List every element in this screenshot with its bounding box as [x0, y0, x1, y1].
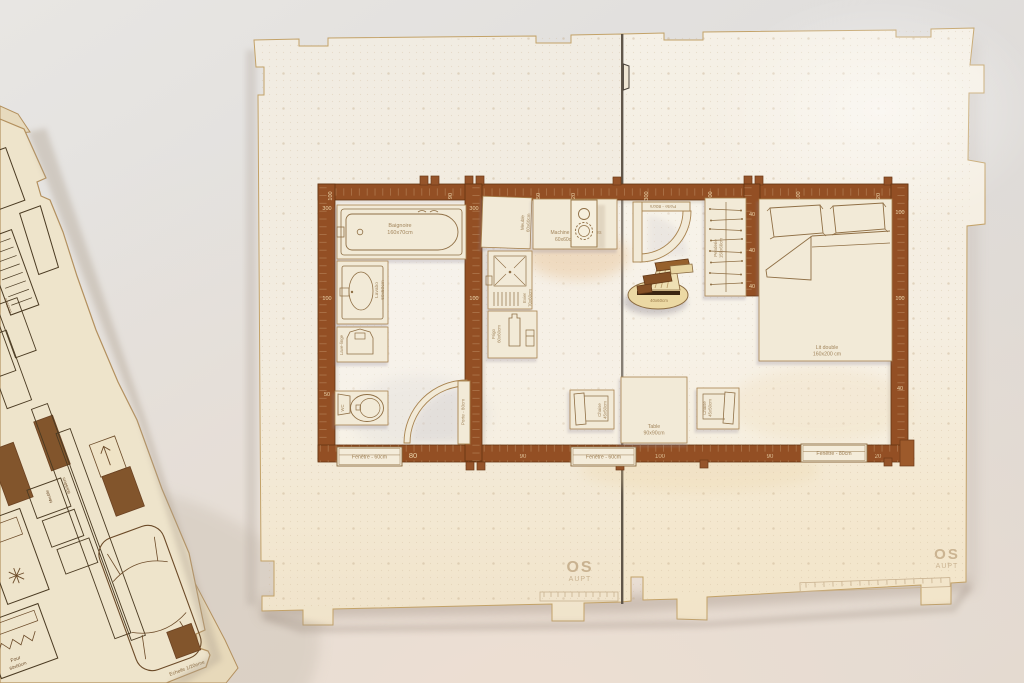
- svg-text:Lit double: Lit double: [816, 345, 839, 351]
- svg-text:Lave-linge: Lave-linge: [339, 334, 344, 355]
- svg-text:100: 100: [655, 454, 666, 460]
- svg-text:40x60cm: 40x60cm: [650, 298, 668, 303]
- svg-text:60x60cm: 60x60cm: [497, 325, 502, 343]
- svg-text:Meuble: Meuble: [520, 215, 526, 231]
- svg-text:Chaise: Chaise: [702, 401, 707, 415]
- svg-text:300: 300: [469, 206, 478, 212]
- svg-text:Frigo: Frigo: [491, 328, 496, 339]
- svg-text:Evier: Evier: [522, 292, 527, 303]
- svg-text:20: 20: [876, 193, 882, 199]
- svg-text:90x90cm: 90x90cm: [643, 431, 664, 437]
- svg-text:160x200 cm: 160x200 cm: [813, 352, 841, 358]
- svg-text:45x50cm: 45x50cm: [603, 401, 608, 419]
- svg-text:300: 300: [644, 191, 650, 200]
- svg-text:40: 40: [749, 212, 755, 218]
- svg-text:20: 20: [875, 454, 882, 460]
- svg-text:160x70cm: 160x70cm: [387, 230, 413, 236]
- svg-text:Baignoire: Baignoire: [388, 223, 411, 229]
- svg-text:40: 40: [749, 248, 755, 254]
- svg-text:45x50cm: 45x50cm: [708, 399, 713, 417]
- svg-text:70x60cm: 70x60cm: [528, 289, 533, 307]
- svg-text:100: 100: [895, 296, 904, 302]
- svg-text:50: 50: [324, 392, 330, 398]
- svg-text:90: 90: [448, 193, 454, 199]
- svg-text:90: 90: [520, 454, 527, 460]
- svg-text:OS: OS: [934, 546, 960, 563]
- svg-text:50: 50: [536, 193, 542, 199]
- svg-text:100: 100: [469, 296, 478, 302]
- svg-text:Chaise: Chaise: [597, 403, 602, 417]
- svg-text:AUPT: AUPT: [936, 563, 959, 570]
- svg-text:60x50cm: 60x50cm: [380, 280, 386, 299]
- svg-text:40: 40: [749, 284, 755, 290]
- svg-text:60x60cm: 60x60cm: [525, 213, 531, 232]
- svg-text:Porte - 80cm: Porte - 80cm: [461, 399, 466, 425]
- svg-text:Table: Table: [648, 424, 661, 430]
- svg-text:100: 100: [328, 191, 334, 200]
- svg-text:40: 40: [897, 386, 903, 392]
- svg-text:150x60cm: 150x60cm: [719, 238, 724, 259]
- svg-text:Lavabo: Lavabo: [374, 282, 380, 298]
- svg-text:90: 90: [767, 454, 774, 460]
- svg-text:Fenêtre - 80cm: Fenêtre - 80cm: [816, 451, 851, 457]
- svg-text:Penderie: Penderie: [713, 239, 718, 257]
- svg-text:AUPT: AUPT: [569, 576, 592, 583]
- svg-text:80: 80: [409, 451, 417, 460]
- svg-text:Fenêtre - 60cm: Fenêtre - 60cm: [352, 455, 387, 461]
- svg-text:300: 300: [322, 206, 331, 212]
- svg-text:100: 100: [322, 296, 331, 302]
- svg-text:Porte - 80cm: Porte - 80cm: [650, 204, 676, 209]
- svg-text:20: 20: [571, 193, 577, 199]
- svg-text:WC: WC: [340, 405, 345, 412]
- svg-text:OS: OS: [566, 559, 593, 576]
- svg-text:100: 100: [895, 210, 904, 216]
- svg-text:Fenêtre - 60cm: Fenêtre - 60cm: [586, 455, 621, 461]
